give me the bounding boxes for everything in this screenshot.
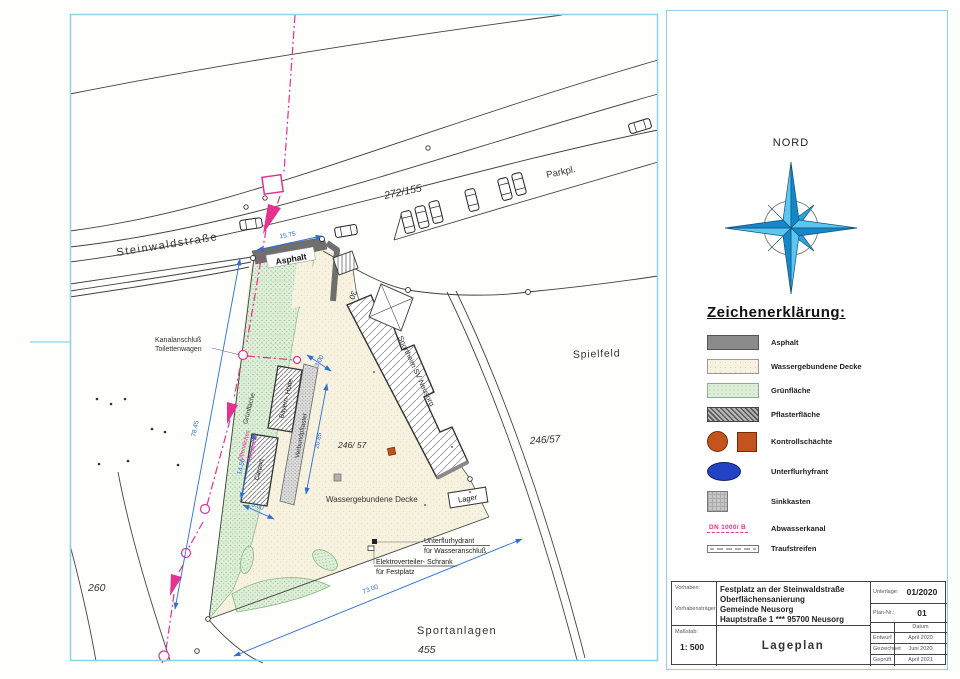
gezeichnet-date: Juni 2020 [894, 646, 947, 652]
paving-swatch [707, 407, 759, 422]
manhole-circle-icon [707, 431, 728, 452]
kontrollschacht-marker [387, 447, 395, 455]
entwurf-label: Entwurf [873, 635, 892, 641]
dim-15-75: 15.75 [279, 230, 297, 240]
legend-item-pflasterflaeche: Pflasterfläche [707, 407, 937, 422]
plannr-value: 01 [900, 608, 944, 618]
hydrant-label-1: Unterflurhydrant [424, 538, 474, 545]
legend-label: Grünfläche [771, 386, 811, 395]
hydrant-marker [372, 539, 377, 544]
legend-label: Abwasserkanal [771, 524, 826, 533]
green-area-swatch [707, 383, 759, 398]
legend-label: Sinkkasten [771, 497, 811, 506]
legend-item-sinkkasten: Sinkkasten [707, 491, 937, 512]
legend-item-asphalt: Asphalt [707, 335, 937, 350]
dim-78-45: 78.45 [191, 420, 201, 438]
elektro-label-2: für Festplatz [376, 569, 415, 576]
kanalanschluss-label-2: Toilettenwagen [155, 346, 202, 353]
dim-73-00: 73.00 [362, 583, 380, 596]
legend-label: Unterflurhyfrant [771, 467, 828, 476]
elektro-label-1: Elektroverteiler- Schrank [376, 559, 453, 566]
parcel-site-label: 246/ 57 [337, 440, 367, 450]
legend-label: Wassergebundene Decke [771, 362, 862, 371]
vorhaben-value-2: Oberflächensanierung [720, 595, 805, 604]
plannr-label: Plan-Nr.: [873, 610, 894, 616]
geprueft-label: Geprüft [873, 657, 891, 663]
unterlage-value: 01/2020 [900, 587, 944, 597]
elektro-marker [368, 546, 374, 551]
vorhaben-value-1: Festplatz an der Steinwaldstraße [720, 585, 844, 594]
legend-item-abwasserkanal: DN 1000/ B Abwasserkanal [707, 522, 937, 535]
sinkkasten-marker [334, 474, 341, 481]
hydrant-label-2: für Wasseranschluß [424, 548, 486, 555]
gully-icon [707, 491, 728, 512]
compass-main-points [725, 162, 857, 294]
parcel-road-label: 272/155 [382, 182, 423, 202]
north-label: NORD [773, 137, 809, 149]
sewer-box [262, 175, 283, 194]
title-block: Vorhaben: Festplatz an der Steinwaldstra… [671, 581, 946, 665]
plan-title: Lageplan [716, 640, 870, 652]
parcel-260-label: 260 [87, 582, 106, 594]
legend-label: Kontrollschächte [771, 437, 832, 446]
parcel-spielfeld-label: 246/57 [528, 434, 561, 447]
road-lines [70, 15, 658, 297]
sportanlagen-label: Sportanlagen [417, 625, 497, 637]
legend-label: Traufstreifen [771, 544, 816, 553]
legend-item-kontrollschaechte: Kontrollschächte [707, 431, 937, 452]
legend-item-traufstreifen: Traufstreifen [707, 542, 937, 555]
unterlage-label: Unterlage: [873, 589, 898, 595]
legend-label: Pflasterfläche [771, 410, 820, 419]
legend-label: Asphalt [771, 338, 799, 347]
compass-rose: NORD [667, 111, 949, 301]
kanalanschluss-label-1: Kanalanschluß [155, 337, 201, 344]
legend: Zeichenerklärung: Asphalt Wassergebunden… [707, 304, 937, 564]
parked-cars [400, 172, 526, 234]
street-label: Steinwaldstraße [116, 231, 219, 259]
legend-item-gruenflaeche: Grünfläche [707, 383, 937, 398]
scatter-dots [96, 398, 180, 467]
datum-header: Datum [894, 624, 947, 630]
driving-cars [239, 118, 652, 238]
traeger-value-1: Gemeinde Neusorg [720, 605, 793, 614]
sewer-line-sample: DN 1000/ B [707, 524, 748, 533]
legend-item-unterflurhydrant: Unterflurhyfrant [707, 462, 937, 481]
parcel-sport-label: 455 [418, 644, 436, 656]
legend-title: Zeichenerklärung: [707, 304, 937, 321]
manhole-square-icon [737, 432, 757, 452]
asphalt-swatch [707, 335, 759, 350]
vorhaben-label: Vorhaben: [675, 585, 700, 591]
site-plan-page: Steinwaldstraße 272/155 Parkpl. Asphalt … [0, 0, 960, 679]
legend-item-wassergebundene-decke: Wassergebundene Decke [707, 359, 937, 374]
massstab-label: Maßstab: [675, 629, 698, 635]
parking-label: Parkpl. [545, 164, 576, 181]
traeger-label: Vorhabensträger: [675, 606, 717, 612]
massstab-value: 1: 500 [680, 642, 704, 652]
entwurf-date: April 2020 [894, 635, 947, 641]
spielfeld-label: Spielfeld [573, 347, 621, 361]
eaves-strip-sample [707, 545, 759, 553]
traeger-value-2: Hauptstraße 1 *** 95700 Neusorg [720, 615, 844, 624]
right-panel: NORD Zeichenerklärung: [666, 10, 948, 670]
geprueft-date: April 2021 [894, 657, 947, 663]
hydrant-ellipse-icon [707, 462, 741, 481]
water-bound-surface-swatch [707, 359, 759, 374]
surface-site-label: Wassergebundene Decke [326, 495, 418, 504]
